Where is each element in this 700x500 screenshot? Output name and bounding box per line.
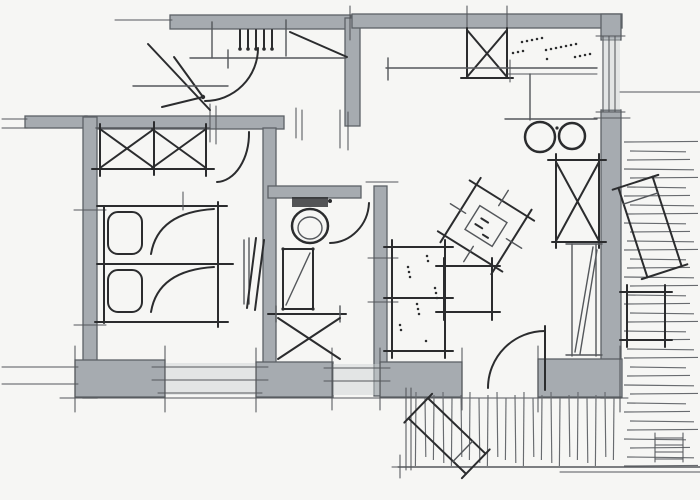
- wardrobe: [92, 122, 214, 176]
- double-sink: [525, 122, 585, 152]
- bathroom-door-swing: [328, 199, 369, 243]
- floorplan-sketch-page: [0, 0, 700, 500]
- terrace-door-swing: [488, 326, 545, 390]
- bedside-radiator: [244, 238, 264, 310]
- room-bathroom: [268, 197, 369, 359]
- windows: [152, 36, 625, 395]
- room-living: [384, 154, 606, 390]
- toilet: [292, 197, 328, 243]
- right-terrace-lounger: [613, 175, 688, 279]
- kitchen-window-glass: [602, 38, 620, 110]
- bottom-terrace-lounger: [404, 394, 489, 478]
- room-bedroom: [92, 122, 264, 327]
- room-entry-hall: [133, 20, 347, 110]
- terrace-right: [613, 92, 700, 466]
- pillow: [108, 212, 142, 254]
- vanity-x-cabinet: [268, 306, 346, 359]
- entry-door-swing: [205, 32, 347, 101]
- terrace-bottom: [392, 388, 700, 478]
- floorplan-canvas: [0, 0, 700, 500]
- base-cabinet: [505, 74, 597, 120]
- bench-rail: [190, 50, 346, 68]
- bathroom-window-glass: [333, 364, 380, 395]
- duvet-fold: [151, 209, 214, 254]
- living-wardrobe: [548, 154, 606, 248]
- twin-beds: [95, 192, 233, 327]
- shower-cabin: [281, 247, 314, 310]
- pillow: [108, 270, 142, 312]
- right-terrace-decking: [624, 141, 698, 466]
- bedroom-window-glass: [165, 363, 256, 395]
- right-terrace-side-table: [620, 285, 672, 347]
- bedroom-door-swing: [217, 132, 249, 182]
- duvet-fold: [151, 267, 214, 312]
- shelf-unit: [566, 244, 602, 356]
